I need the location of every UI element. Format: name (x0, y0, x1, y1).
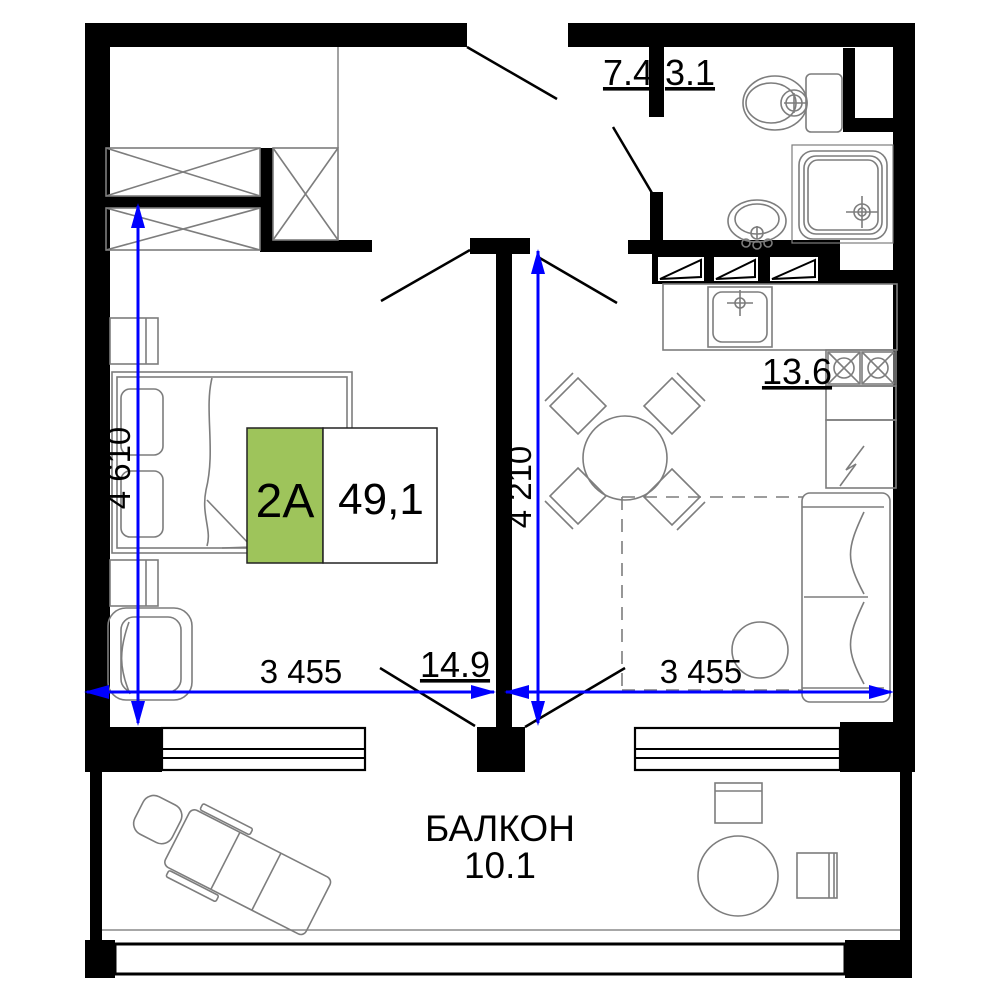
toilet (743, 74, 842, 132)
living-opening-line (538, 257, 617, 303)
room-label-kitchen: 13.6 (762, 351, 832, 392)
dining-chair (644, 373, 705, 434)
balcony-chair (797, 853, 837, 898)
balcony-label: БАЛКОН (425, 808, 575, 849)
apartment-badge: 2A 49,1 (247, 428, 437, 563)
lounge-chair (118, 779, 337, 945)
kitchen-cabinet (826, 386, 896, 420)
fridge (826, 420, 896, 488)
floor-plan-drawing: 7.4 3.1 13.6 14.9 3 455 3 455 4 610 4 21… (0, 0, 1000, 1000)
badge-unit-label: 2A (256, 475, 315, 528)
nightstand (110, 560, 158, 606)
balcony-table (698, 836, 778, 916)
window (162, 728, 365, 770)
bedroom-opening-line (381, 250, 470, 301)
balcony-chair (715, 783, 762, 823)
room-label-living: 14.9 (420, 644, 490, 685)
kitchen-counter (663, 284, 897, 350)
nightstand (110, 318, 158, 364)
shaft-niche (855, 47, 893, 118)
balcony-area-label: 10.1 (464, 845, 536, 886)
bathroom-door-swing (613, 127, 652, 193)
sofa (802, 493, 890, 702)
stove (826, 350, 896, 386)
armchair (108, 608, 192, 700)
shower (792, 145, 893, 243)
entry-door-swing (467, 47, 557, 99)
dimension-label-bedroom-width: 3 455 (260, 653, 343, 690)
dimension-label-living-width: 3 455 (660, 653, 743, 690)
kitchen-sink (708, 287, 772, 347)
dining-chair (545, 373, 606, 434)
door-swing-lines (380, 47, 652, 727)
dining-chair (545, 468, 606, 529)
dining-chair (644, 469, 705, 530)
vent-shaft-icon (658, 257, 818, 281)
window (635, 728, 840, 770)
floor-plan: 7.4 3.1 13.6 14.9 3 455 3 455 4 610 4 21… (0, 0, 1000, 1000)
dimension-label-bedroom-depth: 4 610 (100, 427, 137, 510)
room-label-bathroom: 3.1 (665, 52, 715, 93)
room-label-hall: 7.4 (603, 52, 653, 93)
balcony-railing (115, 944, 845, 974)
badge-area-label: 49,1 (338, 475, 424, 524)
dimension-label-living-depth: 4 210 (501, 446, 538, 529)
